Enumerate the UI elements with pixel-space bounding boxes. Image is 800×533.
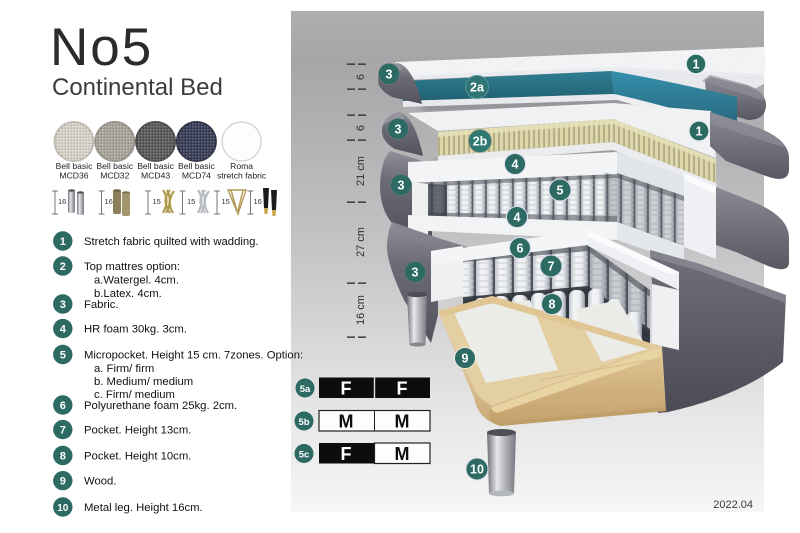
svg-text:16 cm: 16 cm bbox=[355, 295, 367, 325]
svg-text:Stretch fabric quilted with wa: Stretch fabric quilted with wadding. bbox=[84, 236, 259, 248]
svg-text:MCD32: MCD32 bbox=[100, 171, 129, 181]
svg-text:M: M bbox=[339, 412, 354, 432]
svg-text:3: 3 bbox=[398, 179, 405, 193]
svg-text:6: 6 bbox=[60, 400, 66, 412]
svg-text:16: 16 bbox=[254, 197, 262, 206]
svg-text:8: 8 bbox=[60, 451, 66, 463]
svg-text:10: 10 bbox=[57, 503, 69, 514]
svg-text:MCD74: MCD74 bbox=[182, 171, 211, 181]
svg-text:3: 3 bbox=[386, 68, 393, 82]
svg-text:Top mattres option:: Top mattres option: bbox=[84, 261, 180, 273]
svg-text:a.Watergel. 4cm.: a.Watergel. 4cm. bbox=[94, 275, 179, 287]
svg-text:Continental Bed: Continental Bed bbox=[52, 74, 223, 101]
svg-text:5b: 5b bbox=[298, 417, 309, 428]
svg-text:1: 1 bbox=[693, 58, 700, 72]
svg-text:5: 5 bbox=[557, 184, 564, 198]
svg-text:27 cm: 27 cm bbox=[355, 227, 367, 257]
svg-text:Bell basic: Bell basic bbox=[56, 161, 93, 171]
svg-text:MCD36: MCD36 bbox=[59, 171, 88, 181]
svg-text:16: 16 bbox=[105, 197, 113, 206]
svg-text:1: 1 bbox=[60, 236, 66, 248]
svg-text:10: 10 bbox=[470, 463, 484, 477]
svg-text:6: 6 bbox=[355, 125, 367, 131]
svg-text:21 cm: 21 cm bbox=[355, 156, 367, 186]
svg-text:15: 15 bbox=[153, 197, 161, 206]
svg-text:No5: No5 bbox=[50, 18, 153, 77]
svg-text:5: 5 bbox=[60, 350, 66, 362]
svg-text:MCD43: MCD43 bbox=[141, 171, 170, 181]
svg-text:8: 8 bbox=[549, 298, 556, 312]
svg-text:F: F bbox=[397, 379, 408, 399]
svg-text:5a: 5a bbox=[300, 384, 311, 395]
svg-text:16: 16 bbox=[58, 197, 66, 206]
svg-text:2: 2 bbox=[60, 261, 66, 273]
svg-text:3: 3 bbox=[412, 266, 419, 280]
svg-text:2022.04: 2022.04 bbox=[713, 499, 753, 511]
svg-text:7: 7 bbox=[548, 260, 555, 274]
svg-text:Bell basic: Bell basic bbox=[96, 161, 133, 171]
svg-text:a. Firm/ firm: a. Firm/ firm bbox=[94, 363, 154, 375]
svg-text:b. Medium/ medium: b. Medium/ medium bbox=[94, 376, 193, 388]
svg-text:15: 15 bbox=[222, 197, 230, 206]
svg-text:Roma: Roma bbox=[230, 161, 253, 171]
svg-text:4: 4 bbox=[60, 324, 67, 336]
svg-text:2b: 2b bbox=[473, 135, 488, 149]
svg-text:7: 7 bbox=[60, 425, 66, 437]
svg-text:6: 6 bbox=[355, 74, 367, 80]
svg-text:3: 3 bbox=[395, 123, 402, 137]
svg-text:1: 1 bbox=[696, 125, 703, 139]
svg-text:M: M bbox=[395, 444, 410, 464]
svg-text:Bell basic: Bell basic bbox=[178, 161, 215, 171]
svg-text:4: 4 bbox=[512, 158, 519, 172]
svg-text:5c: 5c bbox=[299, 450, 310, 461]
svg-text:Bell basic: Bell basic bbox=[137, 161, 174, 171]
svg-text:Wood.: Wood. bbox=[84, 476, 116, 488]
svg-text:Micropocket. Height 15 cm. 7zo: Micropocket. Height 15 cm. 7zones. Optio… bbox=[84, 350, 303, 362]
svg-text:6: 6 bbox=[517, 242, 524, 256]
svg-text:9: 9 bbox=[60, 476, 66, 488]
svg-text:4: 4 bbox=[514, 211, 521, 225]
svg-text:Fabric.: Fabric. bbox=[84, 299, 119, 311]
svg-text:F: F bbox=[341, 379, 352, 399]
svg-text:15: 15 bbox=[187, 197, 195, 206]
svg-text:Polyurethane foam 25kg. 2cm.: Polyurethane foam 25kg. 2cm. bbox=[84, 400, 237, 412]
svg-text:stretch fabric: stretch fabric bbox=[217, 171, 267, 181]
svg-text:M: M bbox=[395, 412, 410, 432]
svg-text:3: 3 bbox=[60, 299, 66, 311]
svg-text:HR foam 30kg. 3cm.: HR foam 30kg. 3cm. bbox=[84, 324, 187, 336]
svg-text:Metal leg. Height 16cm.: Metal leg. Height 16cm. bbox=[84, 502, 203, 514]
svg-text:Pocket. Height 13cm.: Pocket. Height 13cm. bbox=[84, 425, 191, 437]
svg-text:2a: 2a bbox=[470, 81, 485, 95]
svg-text:Pocket. Height 10cm.: Pocket. Height 10cm. bbox=[84, 451, 191, 463]
svg-text:F: F bbox=[341, 444, 352, 464]
svg-text:9: 9 bbox=[462, 352, 469, 366]
